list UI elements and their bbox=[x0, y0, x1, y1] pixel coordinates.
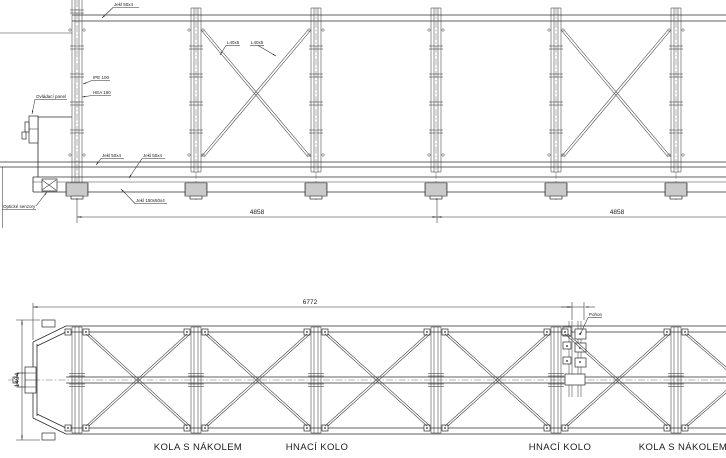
elevation-structure bbox=[66, 0, 687, 200]
dimension-span-right: 4858 bbox=[610, 209, 625, 216]
wheel-label-2: HNACÍ KOLO bbox=[286, 442, 349, 453]
technical-drawing: 4858 4858 Jekl 50x4 IPE 100 HEA 160 Ovlá… bbox=[0, 0, 726, 458]
wheel-block bbox=[305, 183, 327, 199]
wheel-label-3: HNACÍ KOLO bbox=[529, 442, 592, 453]
label-column-profile-2: HEA 160 bbox=[93, 90, 111, 95]
label-bottom-chord: Jekl 50x4 bbox=[102, 153, 122, 158]
column-post bbox=[308, 8, 324, 200]
control-panel-box bbox=[22, 116, 38, 143]
base-rail bbox=[3, 167, 726, 228]
label-drive: Pohon bbox=[589, 312, 603, 317]
label-diagonal-left: L40x5 bbox=[227, 40, 240, 45]
wheel-labels: KOLA S NÁKOLEM HNACÍ KOLO HNACÍ KOLO KOL… bbox=[154, 442, 726, 453]
label-bottom-member: Jekl 50x4 bbox=[143, 153, 163, 158]
elevation-dimensions: 4858 4858 bbox=[77, 198, 726, 223]
label-top-chord: Jekl 50x4 bbox=[114, 2, 134, 7]
elevation-view: 4858 4858 Jekl 50x4 IPE 100 HEA 160 Ovlá… bbox=[0, 0, 726, 228]
dimension-width: 1494 bbox=[14, 372, 21, 387]
left-outrigger bbox=[38, 117, 72, 177]
wheel-block bbox=[545, 183, 567, 199]
label-optical-sensors: Optické senzory bbox=[3, 204, 36, 209]
dimension-length: 6772 bbox=[303, 299, 318, 306]
column-post bbox=[69, 0, 85, 200]
label-diagonal-right: L40x5 bbox=[251, 40, 264, 45]
wheel-label-1: KOLA S NÁKOLEM bbox=[154, 442, 243, 453]
plan-view: 6772 1494 Pohon KOLA S NÁKOLEM HNACÍ KOL… bbox=[8, 299, 726, 453]
wheel-label-4: KOLA S NÁKOLEM bbox=[639, 442, 726, 453]
column-post bbox=[428, 8, 444, 200]
column-post bbox=[188, 8, 204, 200]
drawing-canvas: 4858 4858 Jekl 50x4 IPE 100 HEA 160 Ovlá… bbox=[0, 0, 726, 458]
label-control-panel: Ovládací panel bbox=[36, 94, 66, 99]
optical-sensor-box bbox=[42, 179, 57, 191]
wheel-block bbox=[66, 183, 88, 199]
column-post bbox=[548, 8, 564, 200]
x-bracing bbox=[201, 30, 311, 157]
column-post bbox=[668, 8, 684, 200]
dimension-span-left: 4858 bbox=[250, 209, 265, 216]
wheel-block bbox=[665, 183, 687, 199]
label-column-profile-1: IPE 100 bbox=[93, 75, 110, 80]
wheel-block bbox=[185, 183, 207, 199]
wheel-block bbox=[425, 183, 447, 199]
x-bracing bbox=[561, 30, 671, 157]
label-base-beam: Jekl 150x50x4 bbox=[136, 198, 165, 203]
